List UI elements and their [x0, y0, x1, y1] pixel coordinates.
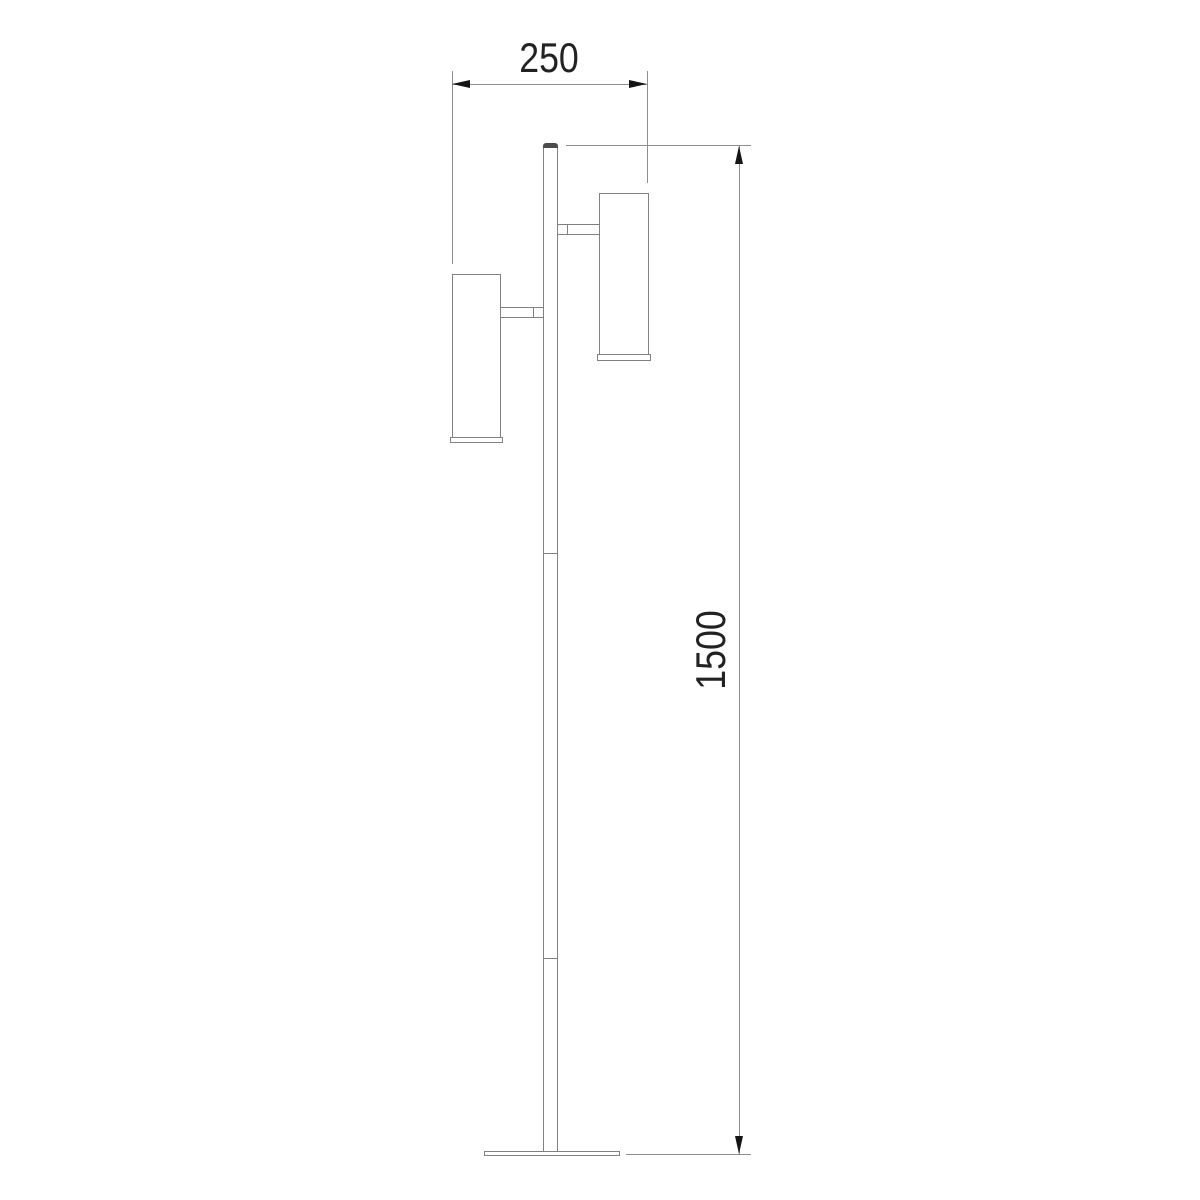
left-lamp-head-rim	[450, 437, 503, 443]
arrowhead-down-icon	[735, 1136, 743, 1154]
lamp-pole	[543, 147, 558, 1152]
dimension-line-1500	[739, 146, 740, 1155]
extension-line-1500-bottom	[626, 1154, 751, 1155]
arrowhead-left-icon	[452, 80, 470, 88]
right-lamp-head-rim	[597, 354, 651, 361]
pole-joint-upper	[544, 553, 557, 554]
arrowhead-up-icon	[735, 146, 743, 164]
right-lamp-head	[599, 193, 649, 355]
base-plate	[484, 1151, 620, 1156]
left-lamp-head	[452, 274, 501, 438]
extension-line-250-left	[452, 71, 453, 264]
arrowhead-right-icon	[629, 80, 647, 88]
dimension-label-width: 250	[519, 37, 579, 79]
dimension-label-height: 1500	[690, 610, 732, 689]
extension-line-1500-top	[566, 145, 751, 146]
lamp-pole-cap	[543, 143, 558, 148]
drawing-canvas: 250 1500	[0, 0, 1200, 1200]
pole-joint-lower	[544, 958, 557, 959]
dimension-line-250	[452, 84, 648, 85]
extension-line-250-right	[647, 71, 648, 183]
